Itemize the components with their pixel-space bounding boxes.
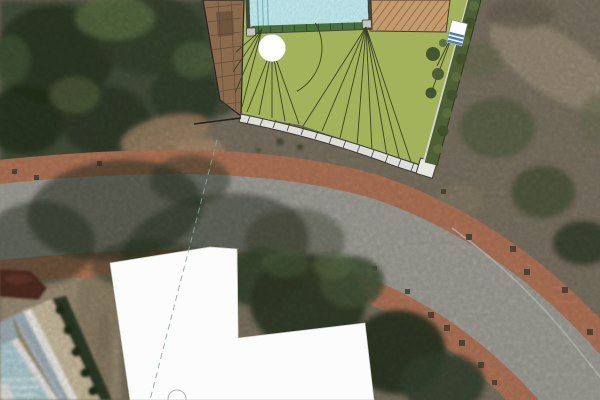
aerial-map-view[interactable] (0, 0, 600, 400)
pool-corner-block-left (246, 28, 255, 36)
tree-symbol (259, 35, 286, 62)
pool-corner-block-right (362, 20, 371, 28)
map-canvas (0, 0, 600, 400)
